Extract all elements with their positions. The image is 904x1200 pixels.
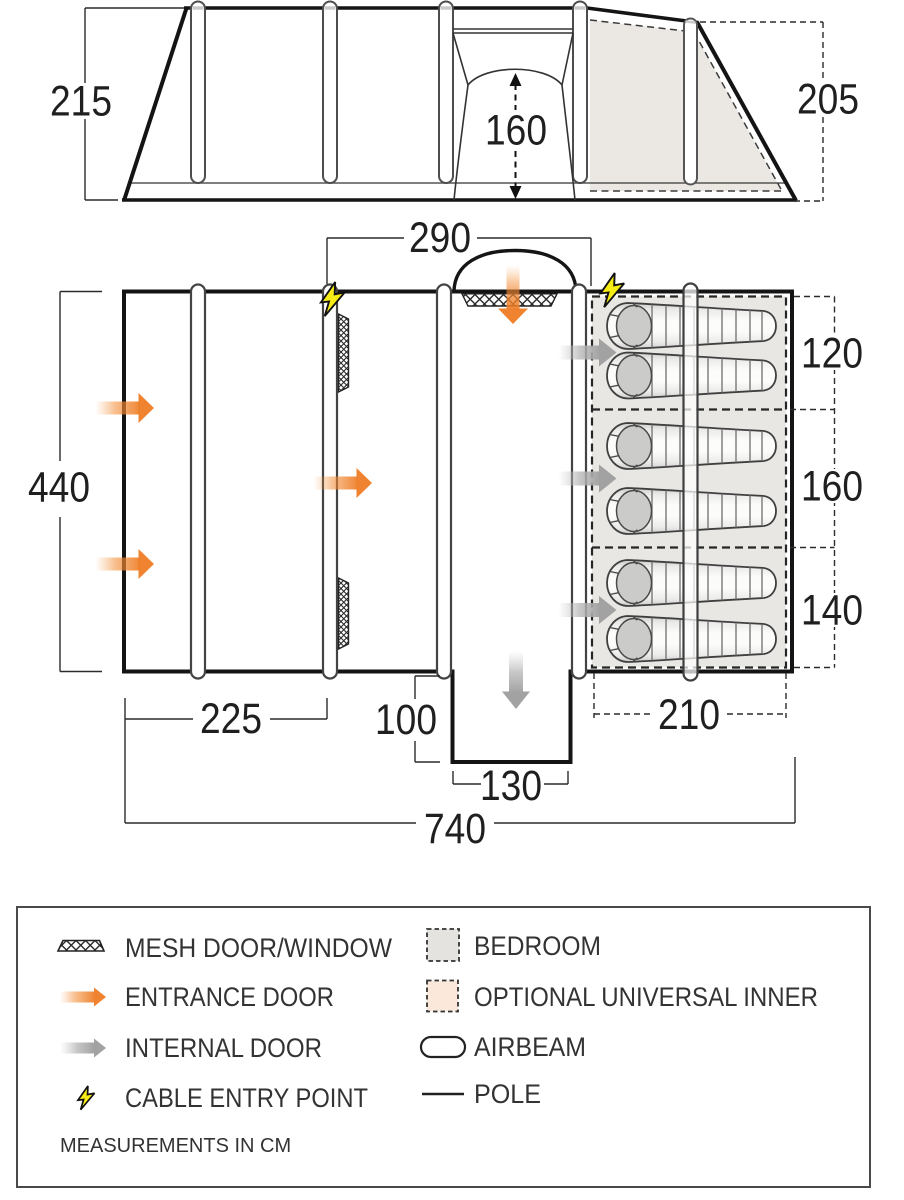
svg-text:CABLE ENTRY POINT: CABLE ENTRY POINT <box>125 1083 368 1113</box>
svg-text:215: 215 <box>50 78 112 126</box>
svg-text:AIRBEAM: AIRBEAM <box>474 1032 586 1062</box>
svg-text:160: 160 <box>485 107 547 155</box>
svg-text:160: 160 <box>801 463 863 511</box>
svg-text:MEASUREMENTS IN CM: MEASUREMENTS IN CM <box>60 1135 291 1157</box>
svg-text:120: 120 <box>801 330 863 378</box>
svg-text:440: 440 <box>28 464 90 512</box>
svg-text:POLE: POLE <box>474 1079 541 1109</box>
svg-text:225: 225 <box>200 695 262 743</box>
svg-text:210: 210 <box>658 691 720 739</box>
svg-text:740: 740 <box>424 805 486 853</box>
svg-text:100: 100 <box>375 696 437 744</box>
svg-text:130: 130 <box>480 762 542 810</box>
svg-text:MESH DOOR/WINDOW: MESH DOOR/WINDOW <box>125 933 392 963</box>
svg-text:OPTIONAL UNIVERSAL INNER: OPTIONAL UNIVERSAL INNER <box>474 982 818 1012</box>
svg-text:290: 290 <box>409 214 471 262</box>
svg-text:140: 140 <box>801 587 863 635</box>
svg-text:BEDROOM: BEDROOM <box>474 931 601 961</box>
svg-text:INTERNAL DOOR: INTERNAL DOOR <box>125 1033 322 1063</box>
svg-text:205: 205 <box>797 76 859 124</box>
svg-text:ENTRANCE DOOR: ENTRANCE DOOR <box>125 982 334 1012</box>
